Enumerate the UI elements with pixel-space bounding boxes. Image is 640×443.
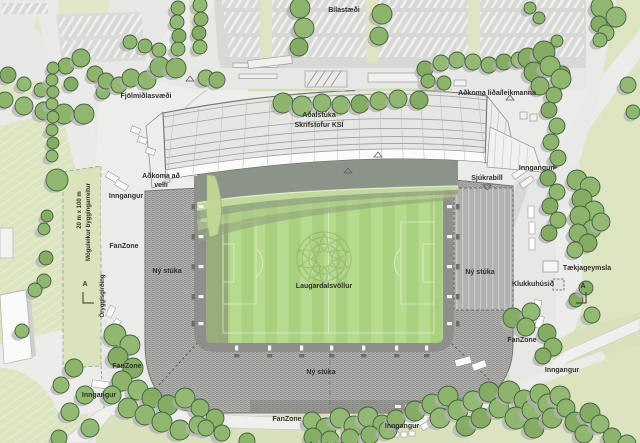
svg-text:Klukkuhúsið: Klukkuhúsið: [512, 280, 554, 288]
svg-text:Ný stúka: Ný stúka: [306, 369, 335, 376]
svg-text:Aðkoma liða/leikmanna: Aðkoma liða/leikmanna: [458, 89, 536, 97]
svg-text:A: A: [580, 283, 585, 290]
svg-text:Inngangur: Inngangur: [82, 392, 116, 399]
svg-text:Inngangur: Inngangur: [109, 193, 143, 200]
svg-text:Öryggisgirðing: Öryggisgirðing: [99, 274, 106, 317]
svg-text:Sjúkrabíll: Sjúkrabíll: [471, 175, 503, 182]
svg-text:Inngangur: Inngangur: [519, 165, 553, 172]
svg-text:A: A: [82, 281, 87, 288]
svg-text:Inngangur: Inngangur: [545, 367, 579, 374]
svg-text:FanZone: FanZone: [112, 363, 141, 370]
svg-text:20 m x 100 m: 20 m x 100 m: [77, 191, 83, 228]
svg-text:Aðalstúka: Aðalstúka: [302, 111, 336, 119]
svg-text:Laugardalsvöllur: Laugardalsvöllur: [296, 283, 353, 290]
svg-text:Ný stúka: Ný stúka: [152, 268, 181, 275]
svg-text:FanZone: FanZone: [272, 416, 301, 423]
svg-text:velli: velli: [154, 182, 168, 189]
svg-text:Fjölmiðlasvæði: Fjölmiðlasvæði: [121, 92, 172, 100]
svg-text:FanZone: FanZone: [109, 243, 138, 250]
svg-text:Inngangur: Inngangur: [385, 423, 419, 430]
svg-text:Aðkoma að: Aðkoma að: [142, 172, 180, 180]
svg-text:Möguleikur byggingarreitur: Möguleikur byggingarreitur: [86, 182, 92, 261]
svg-text:Ný stúka: Ný stúka: [465, 269, 494, 276]
svg-text:Bílastæði: Bílastæði: [328, 6, 360, 14]
svg-text:Tækjageymsla: Tækjageymsla: [563, 265, 611, 272]
svg-text:Skrifstofur KSÍ: Skrifstofur KSÍ: [294, 120, 344, 129]
svg-text:FanZone: FanZone: [507, 337, 536, 344]
